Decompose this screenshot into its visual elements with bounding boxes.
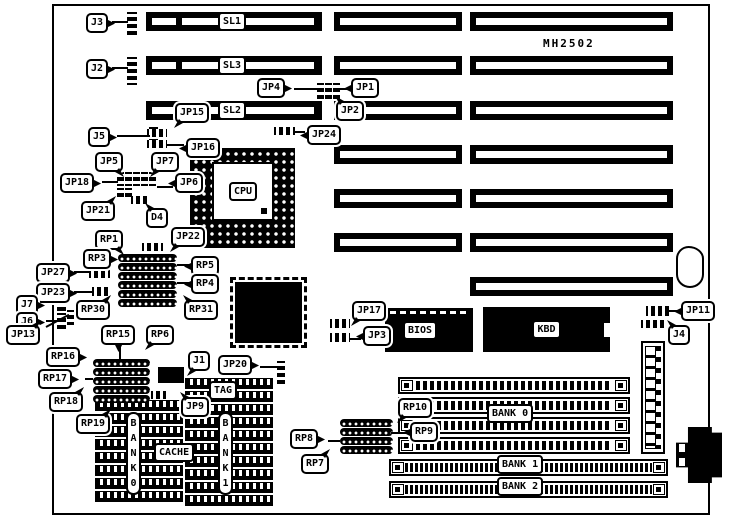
- slot-opening: [476, 151, 667, 158]
- cache-dip-chip: [185, 495, 273, 506]
- cpu-jumper-2: [125, 172, 132, 186]
- expansion-slot: [470, 233, 673, 252]
- j1-pin-grid: [158, 367, 184, 383]
- callout-rp18: RP18: [49, 392, 83, 412]
- memory-socket: [398, 377, 630, 394]
- leader-line: [166, 144, 187, 146]
- resistor-pack: [93, 359, 150, 367]
- resistor-pack: [340, 446, 393, 454]
- power-connector: [641, 341, 665, 454]
- leader-line: [260, 366, 277, 368]
- callout-d4: D4: [146, 208, 168, 228]
- expansion-slot: [334, 145, 462, 164]
- socket-end-bracket: [401, 380, 413, 391]
- jp9-block: [151, 391, 166, 399]
- socket-pins: [416, 381, 612, 390]
- socket-end-bracket: [653, 484, 665, 495]
- callout-jp7: JP7: [151, 152, 179, 172]
- callout-jp9: JP9: [181, 397, 209, 417]
- callout-rp30: RP30: [76, 300, 110, 320]
- board-model-text: MH2502: [543, 37, 595, 50]
- leader-line: [328, 440, 340, 442]
- callout-jp23: JP23: [36, 283, 70, 303]
- expansion-slot: [470, 145, 673, 164]
- callout-rp5: RP5: [191, 256, 219, 276]
- bios-socket-notch: [390, 311, 468, 314]
- socket-end-bracket: [615, 380, 627, 391]
- resistor-pack: [93, 377, 150, 385]
- bios-label: BIOS: [403, 321, 437, 340]
- slot-opening: [182, 18, 314, 25]
- expansion-slot: [334, 12, 462, 31]
- jp23-block: [92, 287, 111, 296]
- callout-rp17: RP17: [38, 369, 72, 389]
- label-sl1: SL1: [218, 12, 246, 31]
- slot-opening: [182, 62, 314, 69]
- slot-opening: [340, 151, 456, 158]
- callout-jp11: JP11: [681, 301, 715, 321]
- leader-line: [112, 21, 128, 23]
- cpu-jumper-3: [133, 172, 140, 186]
- leader-line: [74, 271, 90, 273]
- leader-line: [112, 67, 128, 69]
- jp17-block: [330, 319, 350, 328]
- resistor-pack: [118, 272, 177, 280]
- jp3-block: [330, 333, 350, 342]
- leader-line: [46, 303, 57, 305]
- callout-jp16: JP16: [186, 138, 220, 158]
- leader-line: [117, 135, 150, 137]
- callout-jp20: JP20: [218, 355, 252, 375]
- callout-rp9: RP9: [410, 422, 438, 442]
- label-cache: CACHE: [154, 443, 194, 462]
- slot-opening: [152, 18, 176, 25]
- resistor-pack: [93, 368, 150, 376]
- callout-rp4: RP4: [191, 274, 219, 294]
- callout-jp27: JP27: [36, 263, 70, 283]
- leader-line: [157, 186, 176, 188]
- label-sl3: SL3: [218, 56, 246, 75]
- battery-outline: [676, 246, 704, 288]
- callout-rp8: RP8: [290, 429, 318, 449]
- resistor-pack: [340, 437, 393, 445]
- socket-end-bracket: [615, 440, 627, 451]
- slot-opening: [152, 62, 176, 69]
- expansion-slot: [470, 56, 673, 75]
- leader-line: [85, 378, 93, 380]
- j3-connector: [127, 12, 137, 38]
- callout-jp22: JP22: [171, 227, 205, 247]
- callout-j4: J4: [668, 325, 690, 345]
- label-bank-0: BANK 0: [487, 404, 533, 423]
- label-sl2: SL2: [218, 101, 246, 120]
- callout-rp16: RP16: [46, 347, 80, 367]
- callout-rp7: RP7: [301, 454, 329, 474]
- socket-pins: [416, 441, 612, 450]
- label-bank-1: BANK 1: [497, 455, 543, 474]
- callout-jp18: JP18: [60, 173, 94, 193]
- callout-jp13: JP13: [6, 325, 40, 345]
- label-bank-2: BANK 2: [497, 477, 543, 496]
- callout-rp19: RP19: [76, 414, 110, 434]
- slot-opening: [340, 195, 456, 202]
- callout-jp5: JP5: [95, 152, 123, 172]
- label-bank1: BANK1: [218, 412, 233, 495]
- resistor-pack: [118, 281, 177, 289]
- jp11-block: [646, 306, 670, 316]
- slot-opening: [476, 239, 667, 246]
- resistor-pack: [118, 290, 177, 298]
- cpu-pin1-dot: [261, 208, 267, 214]
- expansion-slot: [470, 12, 673, 31]
- slot-opening: [476, 62, 667, 69]
- jp20-connector: [277, 361, 285, 384]
- j2-connector: [127, 57, 137, 85]
- cpu-label: CPU: [229, 182, 257, 201]
- leader-line: [74, 291, 92, 293]
- expansion-slot: [470, 101, 673, 120]
- callout-rp31: RP31: [184, 300, 218, 320]
- slot-opening: [340, 18, 456, 25]
- motherboard-diagram: MH2502 CPU BIOS KBD J3J2J5JP15JP16JP24JP…: [0, 0, 729, 520]
- resistor-pack: [118, 254, 177, 262]
- slot-opening: [476, 18, 667, 25]
- callout-jp15: JP15: [175, 103, 209, 123]
- jp16-block: [147, 140, 167, 148]
- socket-end-bracket: [653, 462, 665, 473]
- socket-end-bracket: [615, 400, 627, 411]
- resistor-pack: [118, 263, 177, 271]
- callout-j3: J3: [86, 13, 108, 33]
- resistor-pack: [93, 395, 150, 403]
- jp24-block: [274, 127, 295, 135]
- callout-jp4: JP4: [257, 78, 285, 98]
- kbd-label: KBD: [532, 320, 560, 339]
- resistor-pack: [93, 386, 150, 394]
- callout-jp1: JP1: [351, 78, 379, 98]
- socket-end-bracket: [401, 440, 413, 451]
- callout-j2: J2: [86, 59, 108, 79]
- resistor-pack: [340, 419, 393, 427]
- jp4-block: [317, 83, 324, 100]
- din-pin: [679, 444, 685, 452]
- callout-jp6: JP6: [175, 173, 203, 193]
- callout-rp15: RP15: [101, 325, 135, 345]
- expansion-slot: [470, 277, 673, 296]
- jp27-block: [89, 268, 110, 278]
- callout-rp3: RP3: [83, 249, 111, 269]
- jp15-block: [147, 129, 167, 137]
- j6-aux-connector: [67, 310, 74, 325]
- chipset-qfp-chip: [235, 282, 302, 343]
- leader-line: [294, 88, 317, 90]
- label-tag: TAG: [209, 381, 237, 400]
- resistor-pack: [118, 299, 177, 307]
- callout-rp6: RP6: [146, 325, 174, 345]
- jp22-block: [142, 243, 163, 251]
- cpu-socket: CPU: [190, 148, 295, 248]
- label-bank0: BANK0: [126, 412, 141, 495]
- callout-j5: J5: [88, 127, 110, 147]
- expansion-slot: [334, 233, 462, 252]
- callout-rp10: RP10: [398, 398, 432, 418]
- callout-jp2: JP2: [336, 101, 364, 121]
- callout-jp3: JP3: [363, 326, 391, 346]
- din-pin: [679, 458, 685, 466]
- slot-opening: [152, 107, 176, 114]
- resistor-pack: [340, 428, 393, 436]
- d4-component: [131, 196, 148, 204]
- callout-j1: J1: [188, 351, 210, 371]
- jp1-block-a: [325, 83, 332, 100]
- expansion-slot: [470, 189, 673, 208]
- expansion-slot: [334, 189, 462, 208]
- callout-rp1: RP1: [95, 230, 123, 250]
- slot-opening: [340, 239, 456, 246]
- cpu-jumper-4: [141, 172, 148, 186]
- slot-opening: [476, 283, 667, 290]
- callout-jp17: JP17: [352, 301, 386, 321]
- socket-end-bracket: [392, 484, 404, 495]
- slot-opening: [340, 62, 456, 69]
- callout-jp24: JP24: [307, 125, 341, 145]
- leader-line: [102, 181, 118, 183]
- slot-opening: [476, 107, 667, 114]
- bios-chip: BIOS: [385, 308, 473, 352]
- socket-end-bracket: [615, 420, 627, 431]
- callout-jp21: JP21: [81, 201, 115, 221]
- cpu-die: CPU: [212, 162, 274, 221]
- slot-opening: [476, 195, 667, 202]
- keyboard-controller-chip: KBD: [483, 307, 610, 352]
- jp21-block-a: [117, 188, 124, 198]
- j4-connector: [641, 320, 667, 328]
- socket-end-bracket: [392, 462, 404, 473]
- expansion-slot: [334, 56, 462, 75]
